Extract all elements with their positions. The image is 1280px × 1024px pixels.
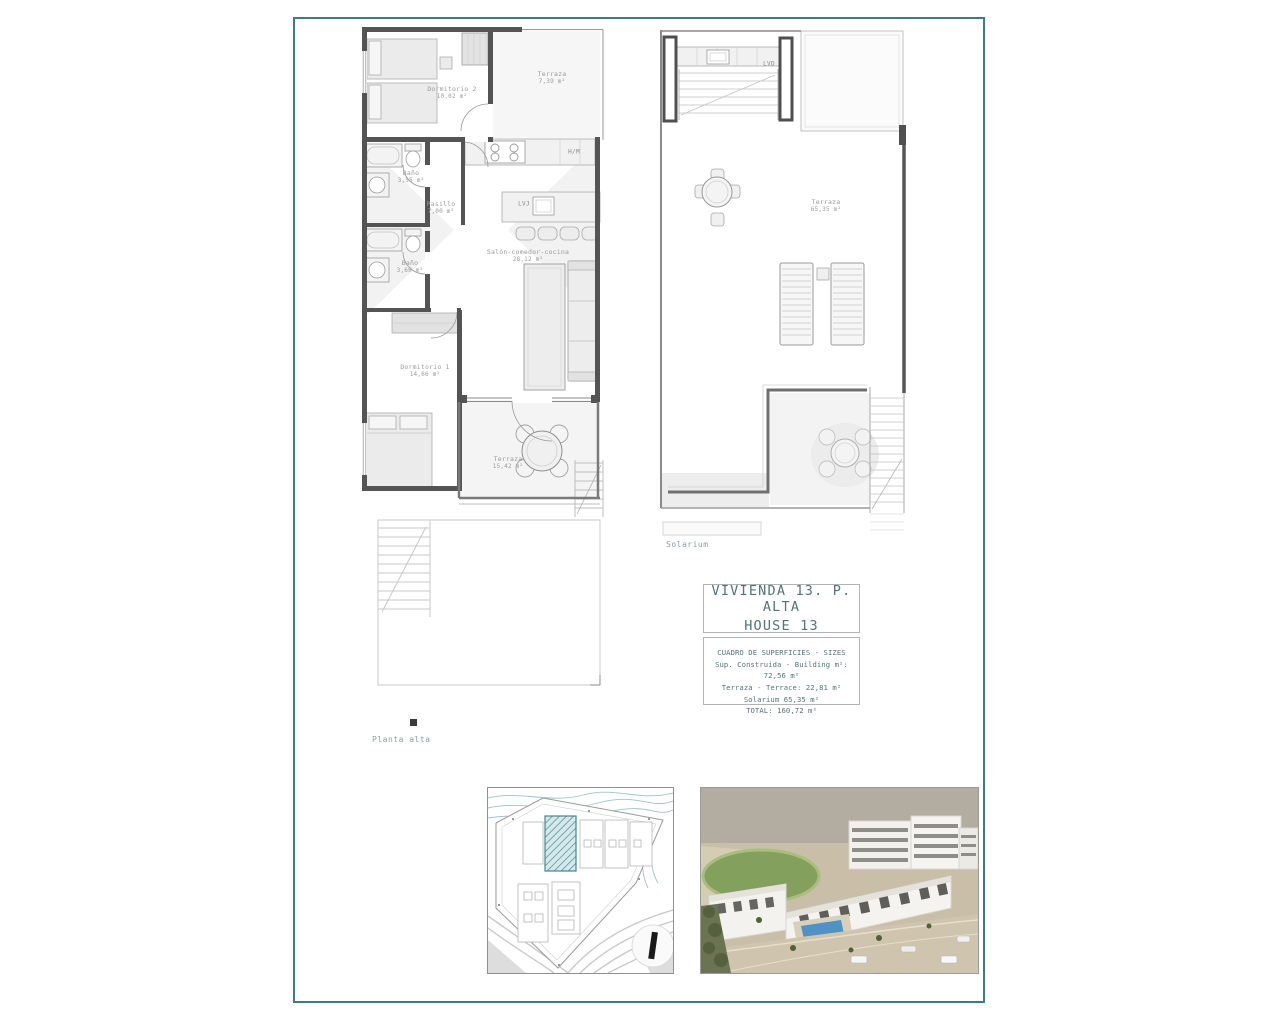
sofa <box>568 261 597 381</box>
dormitorio1-furniture <box>365 313 458 488</box>
lower-floor-outline <box>378 520 600 685</box>
site-plan-drawing <box>488 788 673 973</box>
back-apartment-blocks <box>849 816 978 869</box>
caption-planta-alta: Planta alta <box>372 735 430 744</box>
room-label-terraza-bottom: Terraza 15,42 m² <box>493 455 524 471</box>
render-drawing <box>701 788 978 973</box>
caption-solarium: Solarium <box>666 540 709 549</box>
pergola-outline <box>801 31 903 131</box>
housing-units-top-row <box>523 820 652 868</box>
sizes-table-title: CUADRO DE SUPERFICIES - SIZES <box>704 647 859 659</box>
survey-dot <box>410 719 417 726</box>
dormitorio2-closet <box>462 33 488 65</box>
floorplan-solarium <box>655 25 915 555</box>
room-label-dormitorio2: Dormitorio 2 10,02 m² <box>427 85 476 101</box>
kitchen-island <box>502 192 600 222</box>
annotation-laundry: LVD <box>763 61 775 68</box>
sizes-row-solarium: Solarium 65,35 m² <box>704 694 859 706</box>
title-line2: HOUSE 13 <box>704 618 859 634</box>
room-label-pasillo: Pasillo 7,00 m² <box>427 200 456 216</box>
render-image <box>700 787 979 974</box>
plan-sheet: Dormitorio 2 10,02 m² Terraza 7,39 m² Ba… <box>0 0 1280 1024</box>
sizes-row-total: TOTAL: 160,72 m² <box>704 705 859 717</box>
room-label-dormitorio1: Dormitorio 1 14,66 m² <box>400 363 449 379</box>
sizes-table: CUADRO DE SUPERFICIES - SIZES Sup. Const… <box>703 637 860 705</box>
title-line1: VIVIENDA 13. P. ALTA <box>704 583 859 615</box>
room-label-terraza-solarium: Terraza 65,35 m² <box>811 198 842 214</box>
sun-loungers <box>780 263 864 345</box>
sizes-row-building: Sup. Construida - Building m²: 72,56 m² <box>704 659 859 682</box>
highlighted-unit <box>545 816 576 871</box>
room-label-salon: Salón-comedor-cocina 28,12 m² <box>487 248 569 264</box>
annotation-washer: H/M <box>568 149 580 156</box>
round-table-set-top <box>695 169 740 226</box>
site-plan <box>487 787 674 974</box>
room-label-terraza-top: Terraza 7,39 m² <box>538 70 567 86</box>
annotation-dishwasher: LVJ <box>518 201 530 208</box>
corner-tick <box>590 675 600 685</box>
dormitorio2-beds <box>367 39 452 123</box>
dining-table <box>524 264 565 390</box>
stair-arrival <box>679 69 778 120</box>
floorplan-planta-alta <box>362 27 607 737</box>
room-label-bano1: Baño 3,55 m² <box>398 169 425 185</box>
terrace-table-set <box>516 425 568 477</box>
paved-area-left <box>488 940 526 973</box>
room-label-bano2: Baño 3,60 m² <box>397 259 424 275</box>
sizes-row-terrace: Terraza - Terrace: 22,81 m² <box>704 682 859 694</box>
north-indicator <box>632 925 673 967</box>
title-block: VIVIENDA 13. P. ALTA HOUSE 13 <box>703 584 860 633</box>
